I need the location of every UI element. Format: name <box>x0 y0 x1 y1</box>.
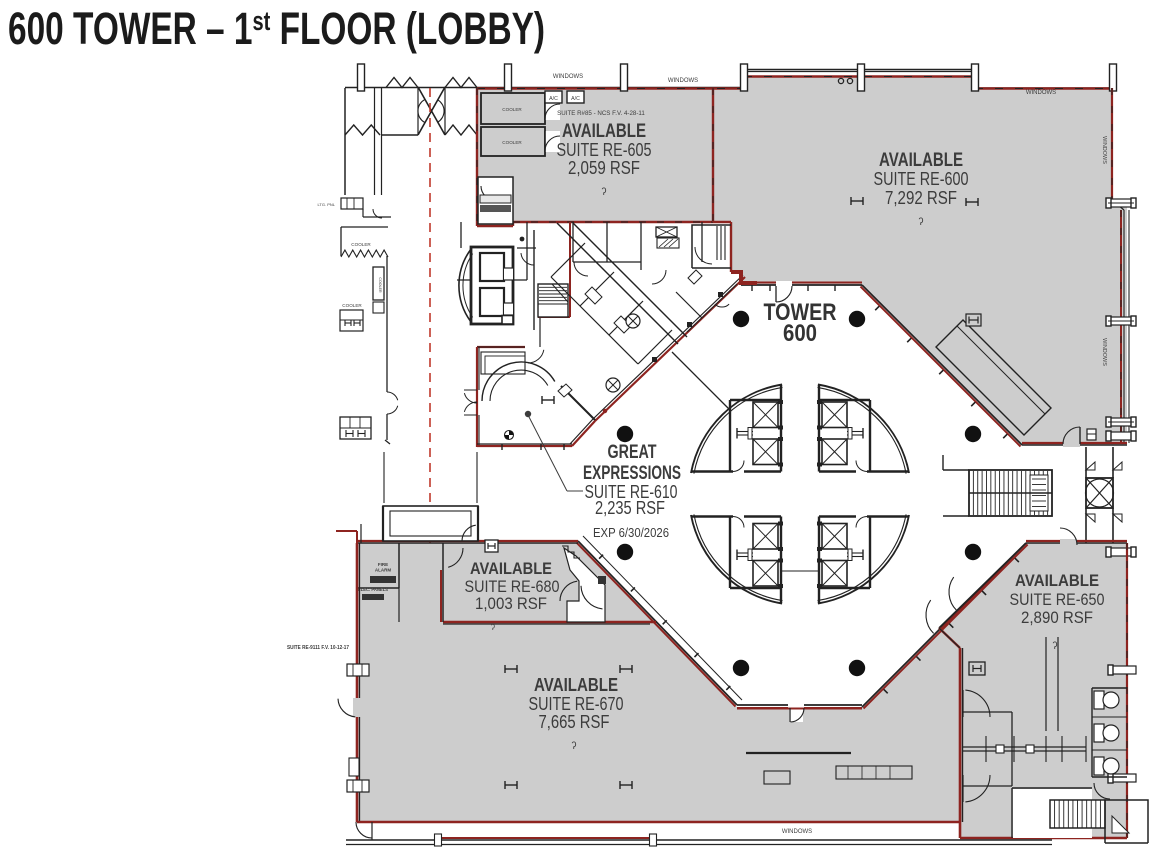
svg-text:EXP 6/30/2026: EXP 6/30/2026 <box>593 526 669 540</box>
svg-text:GREAT: GREAT <box>608 442 657 463</box>
svg-text:ʔ: ʔ <box>1053 641 1058 652</box>
svg-text:A/C: A/C <box>549 96 558 102</box>
svg-text:600: 600 <box>783 320 817 347</box>
svg-text:COOLER: COOLER <box>502 140 522 145</box>
svg-text:WINDOWS: WINDOWS <box>782 829 812 835</box>
svg-text:COOLER: COOLER <box>502 107 522 112</box>
svg-text:WINDOWS: WINDOWS <box>1101 338 1107 366</box>
svg-text:LTG. PNL: LTG. PNL <box>318 202 336 207</box>
svg-text:A/C: A/C <box>571 96 580 102</box>
svg-text:AVAILABLE: AVAILABLE <box>534 675 618 695</box>
svg-text:ʔ: ʔ <box>602 187 607 198</box>
svg-text:AVAILABLE: AVAILABLE <box>470 559 552 578</box>
svg-text:2,890 RSF: 2,890 RSF <box>1021 608 1093 627</box>
svg-text:SUITE RE-670: SUITE RE-670 <box>529 694 624 714</box>
svg-text:COOLER: COOLER <box>378 277 382 293</box>
svg-text:1,003 RSF: 1,003 RSF <box>475 594 547 613</box>
svg-text:2,059 RSF: 2,059 RSF <box>568 158 640 178</box>
svg-text:7,292 RSF: 7,292 RSF <box>885 188 957 208</box>
svg-text:2,235 RSF: 2,235 RSF <box>595 498 665 518</box>
svg-text:600 TOWER – 1st FLOOR (LOBBY): 600 TOWER – 1st FLOOR (LOBBY) <box>8 3 545 54</box>
svg-text:ʔ: ʔ <box>919 217 924 228</box>
svg-text:SUITE RE-9111 F.V. 10-12-17: SUITE RE-9111 F.V. 10-12-17 <box>287 645 349 651</box>
svg-text:FIRE: FIRE <box>378 562 388 567</box>
svg-text:WINDOWS: WINDOWS <box>553 74 583 80</box>
svg-text:SUITE RE-605: SUITE RE-605 <box>557 140 652 160</box>
svg-text:COOLER: COOLER <box>351 242 371 247</box>
svg-text:AVAILABLE: AVAILABLE <box>879 150 963 171</box>
svg-text:ELEC. PANELS: ELEC. PANELS <box>358 587 388 592</box>
svg-text:7,665 RSF: 7,665 RSF <box>539 712 610 732</box>
svg-text:SUITE R#85 - NCS F.V. 4-28-11: SUITE R#85 - NCS F.V. 4-28-11 <box>557 110 645 117</box>
svg-text:ʔ: ʔ <box>491 623 495 632</box>
svg-text:WINDOWS: WINDOWS <box>1101 136 1107 164</box>
svg-text:COOLER: COOLER <box>342 303 362 308</box>
svg-text:SUITE RE-600: SUITE RE-600 <box>874 169 969 189</box>
svg-text:WINDOWS: WINDOWS <box>1026 90 1056 96</box>
svg-text:AVAILABLE: AVAILABLE <box>1015 571 1099 590</box>
svg-text:ʔ: ʔ <box>572 741 577 752</box>
svg-text:AVAILABLE: AVAILABLE <box>562 121 646 142</box>
svg-text:SUITE RE-650: SUITE RE-650 <box>1010 590 1105 609</box>
svg-text:ALARM: ALARM <box>375 568 391 573</box>
svg-text:WINDOWS: WINDOWS <box>668 78 698 84</box>
svg-text:EXPRESSIONS: EXPRESSIONS <box>583 463 681 484</box>
